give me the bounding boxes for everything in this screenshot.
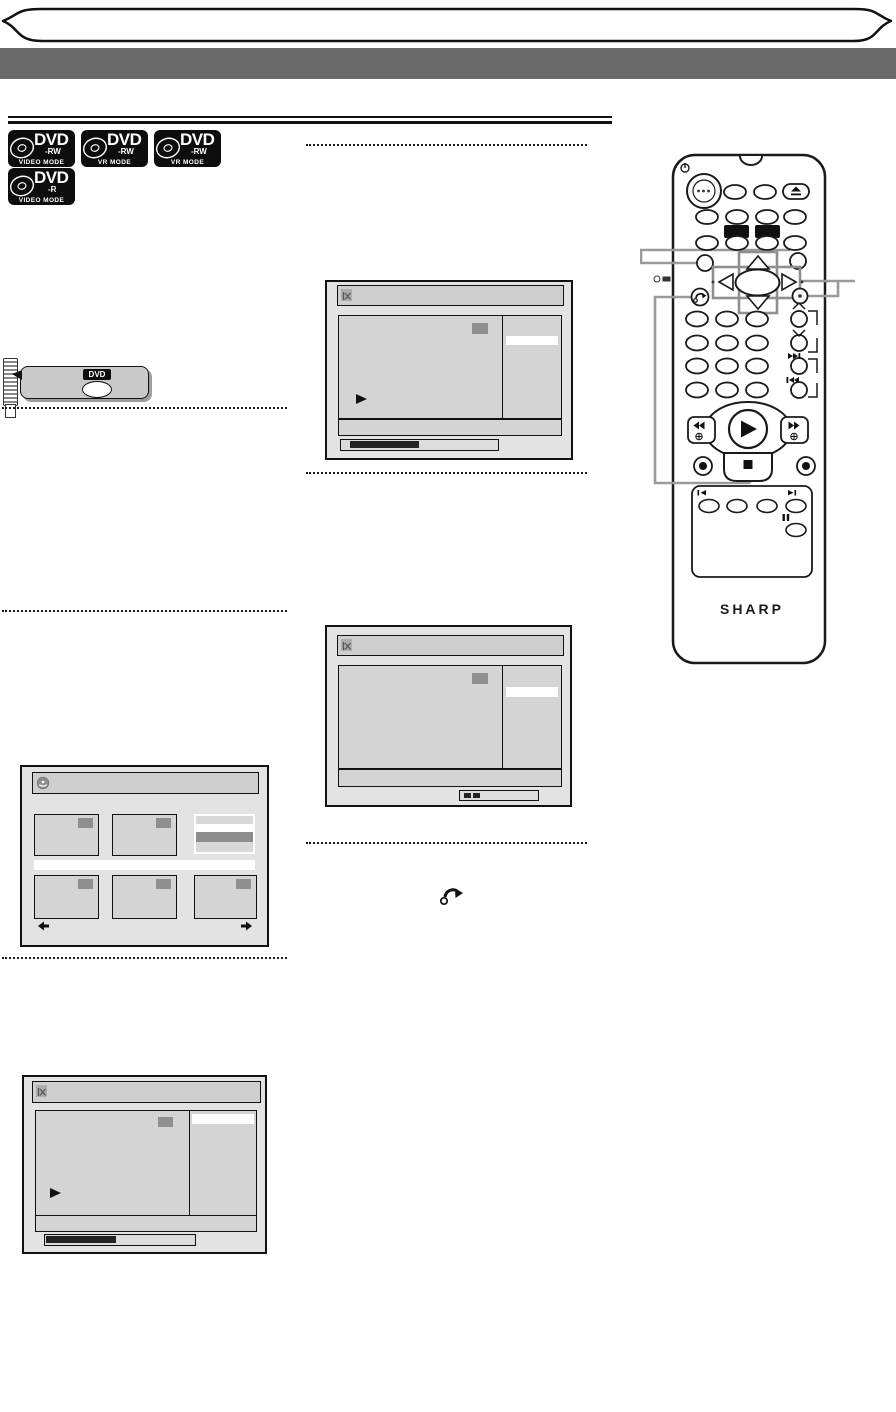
next-page-arrow-icon bbox=[240, 921, 253, 931]
progress-bar bbox=[340, 439, 499, 451]
progress-fill bbox=[46, 1236, 116, 1243]
badge-mode: VR MODE bbox=[81, 159, 148, 166]
panel-divider bbox=[189, 1111, 190, 1215]
panel-divider bbox=[502, 666, 503, 768]
osd-status-bar bbox=[35, 1215, 257, 1232]
function-button bbox=[756, 236, 778, 250]
record-icon bbox=[699, 462, 707, 470]
thumbnail-tag bbox=[236, 879, 251, 889]
osd-status-bar bbox=[338, 419, 562, 436]
badge-variant: -RW bbox=[191, 147, 207, 156]
function-button bbox=[784, 210, 806, 224]
separator bbox=[306, 842, 587, 844]
digit-button bbox=[716, 383, 738, 398]
selected-band bbox=[34, 860, 255, 870]
skip-prev-button bbox=[791, 382, 807, 398]
menu-item bbox=[196, 824, 253, 832]
screen-mockup-edit-2 bbox=[325, 625, 572, 807]
thumbnail-tag bbox=[158, 1117, 173, 1127]
badge-mode: VIDEO MODE bbox=[8, 197, 75, 204]
digit-button bbox=[686, 359, 708, 374]
marker-bar bbox=[459, 790, 539, 801]
osd-title-bar bbox=[32, 1081, 261, 1103]
thumbnail-tag bbox=[156, 879, 171, 889]
osd-main-panel bbox=[338, 665, 562, 769]
setup-button bbox=[697, 255, 713, 271]
digit-button bbox=[716, 359, 738, 374]
edit-icon bbox=[341, 639, 352, 651]
thumbnail bbox=[34, 875, 99, 919]
panel-button bbox=[699, 500, 719, 513]
selected-row bbox=[506, 687, 558, 697]
screen-mockup-edit-3 bbox=[22, 1075, 267, 1254]
function-button bbox=[696, 236, 718, 250]
slow-reverse-icon bbox=[698, 490, 700, 496]
ir-notch bbox=[740, 156, 762, 165]
header-banner bbox=[0, 0, 896, 50]
skip-prev-icon bbox=[787, 377, 789, 383]
disc-badge-dvdr-video: DVD -R VIDEO MODE bbox=[8, 168, 75, 205]
prev-page-arrow-icon bbox=[37, 921, 50, 931]
function-button bbox=[754, 185, 776, 199]
digit-button bbox=[716, 312, 738, 327]
channel-down-button bbox=[791, 335, 807, 351]
channel-up-button bbox=[791, 311, 807, 327]
remote-illustration: SHARP bbox=[640, 140, 896, 680]
digit-button bbox=[746, 312, 768, 327]
badge-variant: -RW bbox=[45, 147, 61, 156]
disc-icon bbox=[9, 134, 37, 162]
badge-variant: -R bbox=[48, 185, 56, 194]
selected-row bbox=[192, 1114, 254, 1124]
mini-remote-icon bbox=[3, 358, 18, 406]
remote-button-callout: DVD bbox=[20, 366, 149, 399]
panel-divider bbox=[502, 316, 503, 418]
thumbnail-tag bbox=[78, 818, 93, 828]
disc-icon bbox=[82, 134, 110, 162]
separator bbox=[2, 407, 287, 409]
section-rule-thin bbox=[8, 116, 612, 118]
separator bbox=[2, 610, 287, 612]
badge-mode: VIDEO MODE bbox=[8, 159, 75, 166]
play-icon bbox=[356, 394, 367, 404]
dvd-button-icon bbox=[82, 381, 112, 398]
panel-button bbox=[757, 500, 777, 513]
separator bbox=[2, 957, 287, 959]
return-icon bbox=[438, 884, 466, 908]
manual-page: DVD -RW VIDEO MODE DVD -RW VR MODE DVD -… bbox=[0, 0, 896, 1412]
thumbnail bbox=[34, 814, 99, 856]
popup-menu bbox=[194, 814, 255, 854]
digit-button bbox=[686, 383, 708, 398]
menu-item bbox=[196, 816, 253, 824]
edit-icon bbox=[341, 289, 352, 301]
thumbnail-tag bbox=[78, 879, 93, 889]
osd-title-bar bbox=[337, 285, 564, 306]
skip-next-button bbox=[791, 358, 807, 374]
disc-icon bbox=[36, 776, 50, 790]
progress-bar bbox=[44, 1234, 196, 1246]
marker-square bbox=[464, 793, 471, 798]
digit-button bbox=[716, 336, 738, 351]
screen-mockup-title-list bbox=[20, 765, 269, 947]
osd-main-panel bbox=[35, 1110, 257, 1216]
return-button bbox=[692, 289, 709, 306]
osd-title-bar bbox=[32, 772, 259, 794]
panel-button bbox=[786, 500, 806, 513]
digit-button bbox=[746, 359, 768, 374]
edit-icon bbox=[36, 1085, 47, 1097]
sharp-logo: SHARP bbox=[720, 601, 784, 617]
dvd-button-label: DVD bbox=[83, 369, 111, 380]
digit-button bbox=[746, 336, 768, 351]
separator bbox=[306, 144, 587, 146]
enter-button bbox=[736, 270, 780, 296]
marker-square bbox=[473, 793, 480, 798]
digit-button bbox=[686, 336, 708, 351]
badge-variant: -RW bbox=[118, 147, 134, 156]
thumbnail bbox=[112, 814, 177, 856]
thumbnail bbox=[194, 875, 257, 919]
function-button bbox=[726, 236, 748, 250]
disc-badge-dvdrw-vr-2: DVD -RW VR MODE bbox=[154, 130, 221, 167]
section-rule-thick bbox=[8, 121, 612, 124]
function-button bbox=[696, 210, 718, 224]
function-button bbox=[756, 210, 778, 224]
disc-icon bbox=[9, 172, 37, 200]
disc-badge-dvdrw-video: DVD -RW VIDEO MODE bbox=[8, 130, 75, 167]
panel-button bbox=[727, 500, 747, 513]
function-button bbox=[724, 185, 746, 199]
thumbnail-tag bbox=[472, 673, 488, 684]
progress-fill bbox=[350, 441, 419, 448]
callout-tail bbox=[12, 370, 22, 380]
marker-dot-icon bbox=[798, 294, 802, 298]
osd-main-panel bbox=[338, 315, 562, 419]
function-button bbox=[726, 210, 748, 224]
thumbnail bbox=[112, 875, 177, 919]
pause-button bbox=[786, 524, 806, 537]
selected-row bbox=[506, 336, 558, 345]
menu-item-selected bbox=[196, 832, 253, 842]
record-icon bbox=[802, 462, 810, 470]
thumbnail-tag bbox=[156, 818, 171, 828]
digit-button bbox=[686, 312, 708, 327]
osd-title-bar bbox=[337, 635, 564, 656]
page-title-bar bbox=[0, 48, 896, 79]
disc-icon bbox=[155, 134, 183, 162]
osd-status-bar bbox=[338, 769, 562, 787]
menu-item bbox=[196, 842, 253, 852]
timer-set-icon bbox=[654, 276, 671, 282]
badge-mode: VR MODE bbox=[154, 159, 221, 166]
play-icon bbox=[50, 1188, 61, 1198]
disc-badge-dvdrw-vr-1: DVD -RW VR MODE bbox=[81, 130, 148, 167]
separator bbox=[306, 472, 587, 474]
digit-button bbox=[746, 383, 768, 398]
stop-icon bbox=[744, 460, 753, 469]
thumbnail-tag bbox=[472, 323, 488, 334]
function-button bbox=[784, 236, 806, 250]
screen-mockup-edit-1 bbox=[325, 280, 573, 460]
